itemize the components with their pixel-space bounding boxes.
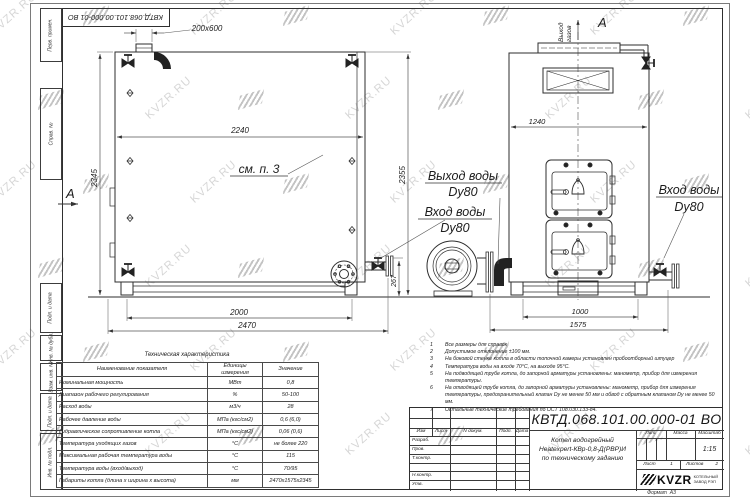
lifting-lug-icon — [349, 158, 355, 165]
gas-outlet-label-1: Выход — [557, 22, 565, 42]
water-inlet-right-dn: Dy80 — [674, 200, 703, 214]
water-inlet-left-dn: Dy80 — [440, 221, 469, 235]
lifting-lug-icon — [127, 90, 133, 97]
dim-1240: 1240 — [529, 117, 547, 126]
dim-1000: 1000 — [572, 307, 590, 316]
dim-2355: 2355 — [398, 166, 407, 185]
front-view — [427, 32, 679, 300]
view-letter-right: А — [597, 15, 607, 30]
valve-icon — [642, 57, 654, 69]
see-note-label: см. п. 3 — [239, 162, 280, 176]
door-hinge — [110, 243, 115, 257]
valve-icon — [372, 258, 384, 270]
door-hinge — [110, 188, 115, 206]
gas-outlet-label-2: газов — [566, 25, 573, 42]
valve-icon — [122, 55, 134, 67]
section-letter-left: А — [65, 186, 75, 201]
lower-door — [546, 220, 615, 278]
dim-2345: 2345 — [90, 169, 99, 188]
valve-icon — [122, 264, 134, 276]
water-outlet-dn: Dy80 — [448, 185, 477, 199]
dim-duct: 200x600 — [191, 24, 223, 33]
upper-door — [546, 160, 615, 218]
dim-2240: 2240 — [230, 126, 249, 135]
lifting-lug-icon — [349, 227, 355, 234]
dim-267: 267 — [391, 274, 398, 288]
gas-duct-elbow — [136, 44, 171, 69]
dim-2470: 2470 — [237, 321, 256, 330]
valve-icon — [346, 55, 358, 67]
dim-2000: 2000 — [229, 308, 248, 317]
water-inlet-left-label: Вход воды — [425, 205, 486, 219]
front-base — [511, 281, 647, 295]
lifting-lug-icon — [127, 215, 133, 222]
water-inlet-right-label: Вход воды — [659, 183, 720, 197]
water-outlet-label: Выход воды — [428, 169, 498, 183]
boiler-drawing: 200x600 2240 см. п. 3 2345 2355 267 2000… — [0, 0, 750, 500]
lifting-lug-icon — [127, 158, 133, 165]
outlet-flange — [331, 261, 357, 287]
blower-fan — [427, 241, 512, 296]
valve-icon — [654, 264, 666, 276]
exhaust-collector — [538, 43, 648, 57]
dim-1575: 1575 — [570, 320, 588, 329]
side-view-dimensions — [58, 29, 445, 334]
